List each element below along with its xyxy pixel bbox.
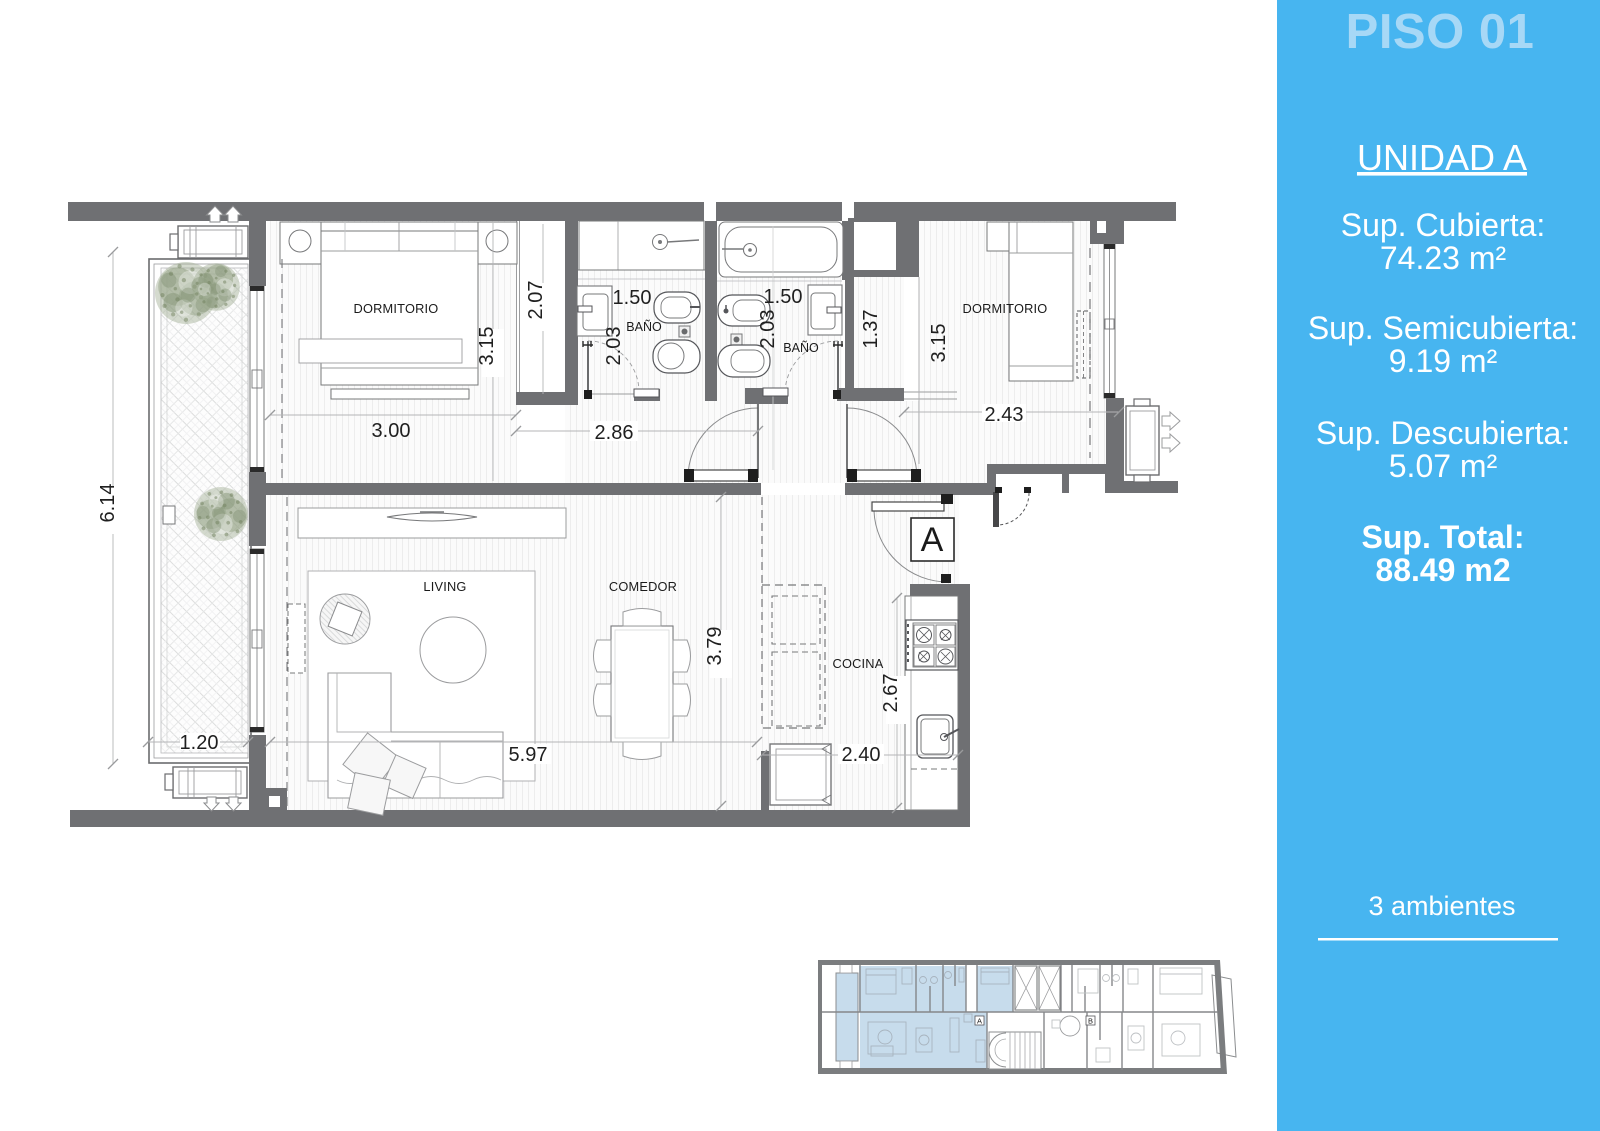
svg-text:5.97: 5.97: [509, 744, 548, 766]
svg-text:3.79: 3.79: [704, 627, 726, 666]
svg-text:2.40: 2.40: [842, 744, 881, 766]
svg-text:2.07: 2.07: [525, 281, 547, 320]
svg-text:1.50: 1.50: [613, 287, 652, 309]
svg-text:3.00: 3.00: [372, 420, 411, 442]
svg-text:PISO 01: PISO 01: [1346, 5, 1535, 59]
svg-text:1.20: 1.20: [180, 732, 219, 754]
svg-text:Sup. Cubierta:: Sup. Cubierta:: [1341, 207, 1546, 243]
svg-text:BAÑO: BAÑO: [783, 341, 819, 355]
svg-text:Sup. Total:: Sup. Total:: [1362, 519, 1525, 555]
svg-text:3.15: 3.15: [928, 324, 950, 363]
svg-text:BAÑO: BAÑO: [626, 320, 662, 334]
svg-text:3 ambientes: 3 ambientes: [1368, 891, 1515, 921]
svg-text:5.07 m²: 5.07 m²: [1389, 448, 1498, 484]
svg-text:DORMITORIO: DORMITORIO: [354, 301, 439, 316]
svg-text:2.86: 2.86: [595, 422, 634, 444]
svg-text:3.15: 3.15: [476, 327, 498, 366]
svg-text:74.23 m²: 74.23 m²: [1380, 240, 1507, 276]
svg-text:DORMITORIO: DORMITORIO: [963, 301, 1048, 316]
svg-text:Sup. Semicubierta:: Sup. Semicubierta:: [1308, 310, 1578, 346]
svg-text:COCINA: COCINA: [833, 656, 884, 671]
svg-text:COMEDOR: COMEDOR: [609, 579, 677, 594]
svg-text:Sup. Descubierta:: Sup. Descubierta:: [1316, 415, 1570, 451]
svg-text:2.67: 2.67: [880, 674, 902, 713]
svg-text:2.03: 2.03: [757, 310, 779, 349]
svg-text:88.49 m2: 88.49 m2: [1375, 552, 1510, 588]
svg-text:6.14: 6.14: [97, 484, 119, 523]
svg-text:2.03: 2.03: [603, 327, 625, 366]
svg-text:UNIDAD A: UNIDAD A: [1357, 137, 1527, 178]
svg-text:LIVING: LIVING: [423, 579, 466, 594]
svg-text:A: A: [921, 521, 944, 559]
svg-text:B: B: [1088, 1017, 1093, 1026]
svg-text:A: A: [977, 1017, 982, 1026]
svg-text:1.37: 1.37: [860, 310, 882, 349]
svg-text:9.19 m²: 9.19 m²: [1389, 343, 1498, 379]
svg-text:1.50: 1.50: [764, 286, 803, 308]
svg-text:2.43: 2.43: [985, 404, 1024, 426]
